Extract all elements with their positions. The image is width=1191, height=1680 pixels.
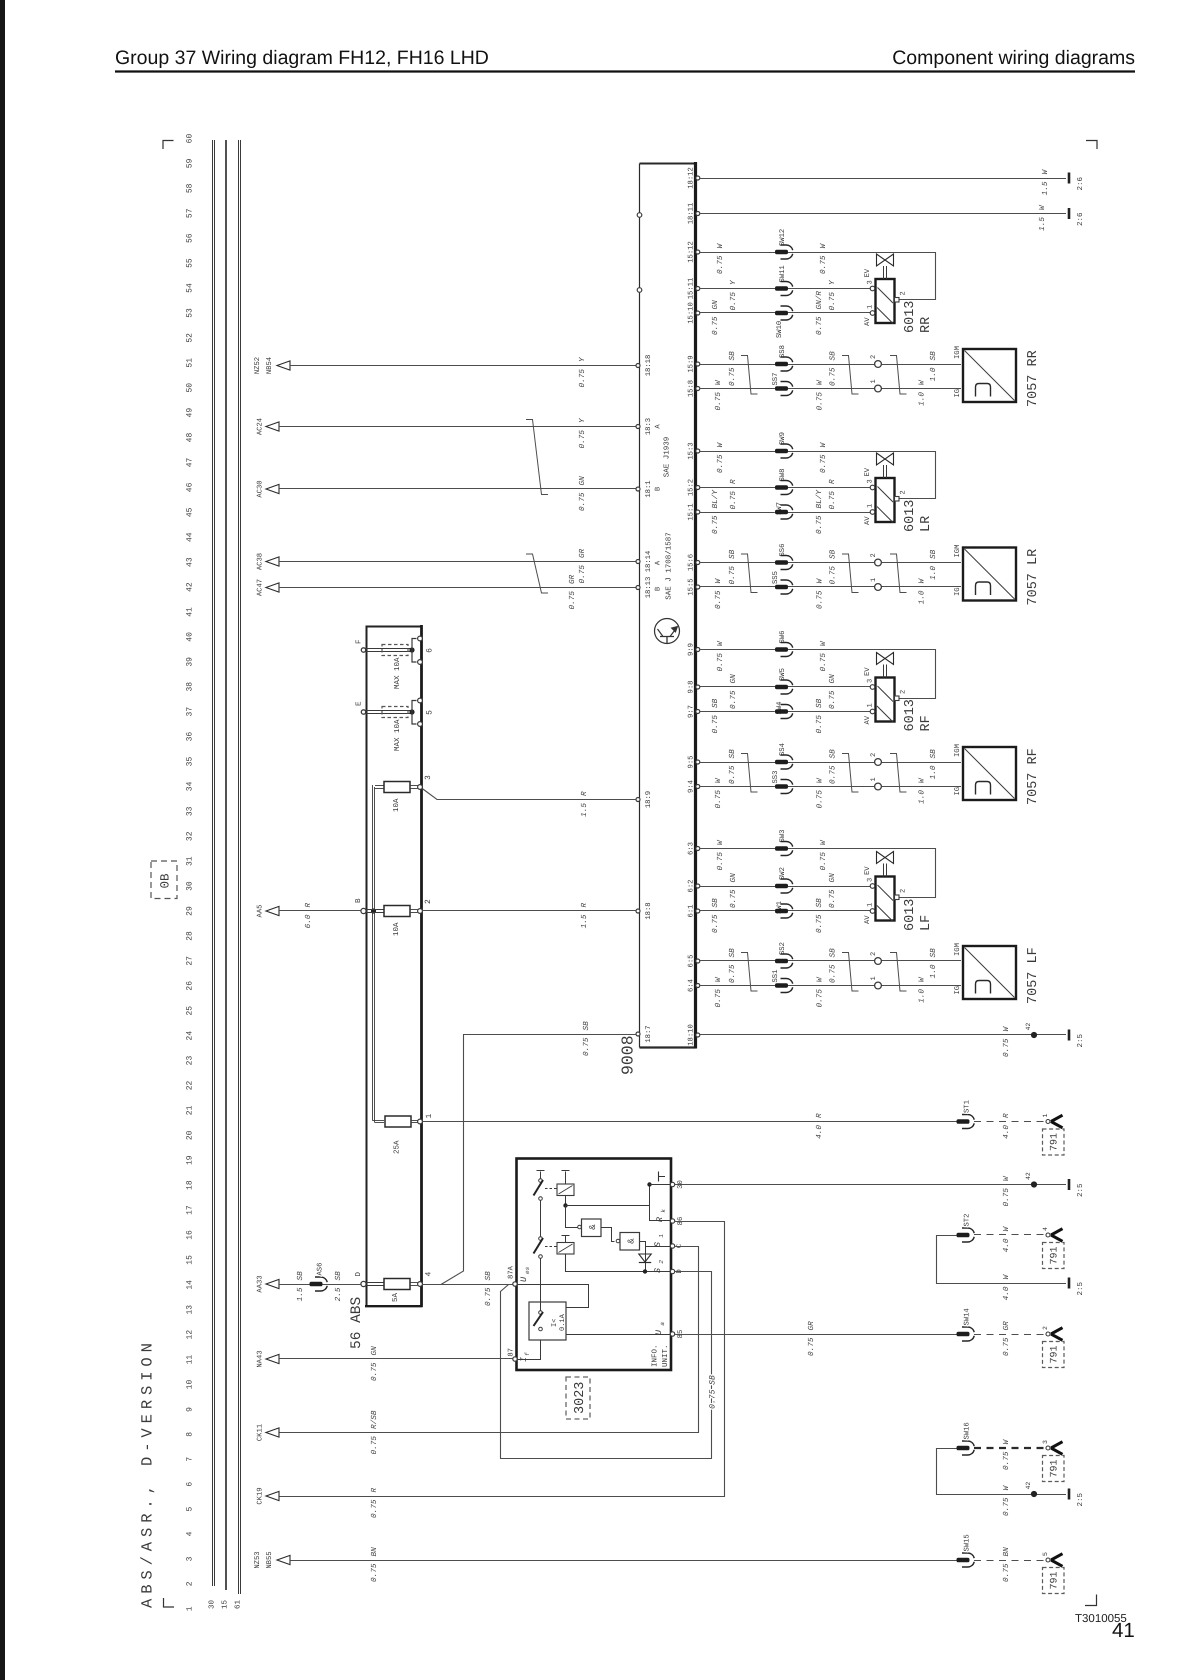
svg-text:2: 2 bbox=[1042, 1326, 1049, 1330]
svg-text:0.75: 0.75 bbox=[711, 914, 720, 933]
svg-text:15:6: 15:6 bbox=[688, 554, 696, 571]
svg-text:0.75: 0.75 bbox=[1002, 1563, 1011, 1582]
svg-text:0.75: 0.75 bbox=[714, 590, 723, 609]
svg-text:4: 4 bbox=[1042, 1227, 1049, 1231]
svg-text:1.0: 1.0 bbox=[929, 566, 938, 580]
svg-text:6: 6 bbox=[425, 648, 434, 653]
svg-text:MAX 10A: MAX 10A bbox=[393, 657, 402, 689]
svg-text:0.75: 0.75 bbox=[711, 715, 720, 734]
svg-text:0.75: 0.75 bbox=[1002, 1188, 1011, 1207]
svg-text:AC30: AC30 bbox=[257, 480, 265, 497]
svg-text:SB: SB bbox=[728, 749, 737, 759]
svg-text:SB: SB bbox=[815, 698, 824, 708]
svg-text:2:6: 2:6 bbox=[1076, 212, 1085, 226]
svg-text:21: 21 bbox=[185, 1105, 194, 1115]
svg-text:A: A bbox=[655, 560, 663, 565]
svg-text:4.0: 4.0 bbox=[815, 1125, 824, 1139]
svg-text:15:2: 15:2 bbox=[688, 479, 696, 496]
svg-text:AC47: AC47 bbox=[257, 579, 265, 596]
svg-text:1.0: 1.0 bbox=[917, 790, 926, 804]
svg-text:f: f bbox=[524, 1352, 531, 1356]
svg-text:SW11: SW11 bbox=[779, 265, 787, 282]
svg-text:15: 15 bbox=[222, 1599, 230, 1609]
svg-text:2:5: 2:5 bbox=[1076, 1492, 1085, 1506]
svg-text:35: 35 bbox=[185, 757, 194, 767]
svg-text:0.75: 0.75 bbox=[370, 1436, 379, 1455]
svg-text:0.1A: 0.1A bbox=[559, 1313, 567, 1331]
svg-text:40: 40 bbox=[185, 632, 194, 642]
svg-text:C: C bbox=[676, 1243, 684, 1248]
svg-text:SW14: SW14 bbox=[964, 1308, 972, 1325]
svg-text:18:9: 18:9 bbox=[645, 791, 653, 808]
svg-text:15:12: 15:12 bbox=[688, 241, 696, 263]
svg-text:S: S bbox=[653, 1268, 663, 1273]
svg-text:51: 51 bbox=[185, 358, 194, 368]
svg-text:1: 1 bbox=[425, 1114, 434, 1119]
svg-text:4.0: 4.0 bbox=[1002, 1286, 1011, 1300]
svg-text:0.75: 0.75 bbox=[815, 989, 824, 1008]
svg-text:2: 2 bbox=[870, 355, 878, 359]
svg-text:49: 49 bbox=[185, 408, 194, 418]
svg-text:15:1: 15:1 bbox=[688, 503, 696, 520]
svg-text:a: a bbox=[659, 1322, 666, 1326]
svg-text:AV: AV bbox=[864, 715, 872, 724]
svg-text:10: 10 bbox=[185, 1380, 194, 1390]
svg-text:10A: 10A bbox=[392, 798, 401, 812]
svg-text:6:1: 6:1 bbox=[688, 905, 696, 918]
svg-text:es: es bbox=[524, 1266, 531, 1274]
svg-text:SB: SB bbox=[728, 549, 737, 559]
svg-text:SS3: SS3 bbox=[772, 771, 780, 784]
svg-text:Component wiring diagrams: Component wiring diagrams bbox=[892, 47, 1135, 69]
svg-text:18:12: 18:12 bbox=[688, 167, 696, 189]
svg-text:2: 2 bbox=[185, 1581, 194, 1586]
svg-text:1.0: 1.0 bbox=[917, 590, 926, 604]
svg-text:BL/Y: BL/Y bbox=[711, 489, 720, 509]
svg-text:0.75: 0.75 bbox=[578, 430, 587, 449]
svg-text:18: 18 bbox=[185, 1180, 194, 1190]
svg-text:30: 30 bbox=[208, 1599, 217, 1609]
svg-text:87: 87 bbox=[508, 1348, 516, 1357]
svg-text:42: 42 bbox=[1025, 1172, 1032, 1180]
svg-text:1.5: 1.5 bbox=[1041, 181, 1050, 195]
svg-text:SB: SB bbox=[815, 898, 824, 908]
svg-text:1: 1 bbox=[870, 379, 878, 383]
svg-text:0.75: 0.75 bbox=[828, 491, 837, 510]
svg-text:0.75: 0.75 bbox=[370, 1563, 379, 1582]
svg-text:3: 3 bbox=[424, 775, 433, 780]
svg-text:0.75: 0.75 bbox=[1002, 1497, 1011, 1516]
svg-text:36: 36 bbox=[185, 732, 194, 742]
svg-text:0.75: 0.75 bbox=[729, 292, 738, 311]
svg-text:AV: AV bbox=[864, 915, 872, 924]
svg-text:IG: IG bbox=[954, 986, 962, 995]
svg-text:GN: GN bbox=[729, 873, 738, 883]
svg-text:56: 56 bbox=[185, 233, 194, 243]
svg-text:GN/R: GN/R bbox=[815, 291, 824, 310]
svg-text:18:11: 18:11 bbox=[688, 203, 696, 225]
svg-text:INFO.: INFO. bbox=[651, 1344, 660, 1367]
svg-text:GN: GN bbox=[578, 476, 587, 486]
svg-text:SW16: SW16 bbox=[964, 1422, 972, 1439]
svg-text:7057 LR: 7057 LR bbox=[1026, 549, 1041, 606]
svg-text:5: 5 bbox=[425, 710, 434, 715]
svg-text:30: 30 bbox=[185, 881, 194, 891]
svg-text:1.0: 1.0 bbox=[917, 989, 926, 1003]
svg-text:10A: 10A bbox=[392, 922, 401, 936]
svg-text:43: 43 bbox=[185, 557, 194, 567]
svg-text:GR: GR bbox=[1002, 1321, 1011, 1331]
svg-text:15:8: 15:8 bbox=[688, 380, 696, 397]
svg-text:0.75: 0.75 bbox=[819, 653, 828, 672]
svg-text:GR: GR bbox=[568, 574, 577, 584]
svg-text:0.75: 0.75 bbox=[714, 392, 723, 411]
svg-text:18:13: 18:13 bbox=[645, 577, 653, 599]
svg-text:6:4: 6:4 bbox=[688, 979, 696, 992]
svg-text:18:14: 18:14 bbox=[645, 551, 653, 573]
svg-text:SB: SB bbox=[582, 1021, 591, 1031]
svg-text:15:5: 15:5 bbox=[688, 578, 696, 595]
svg-text:A: A bbox=[655, 424, 663, 429]
svg-text:SS5: SS5 bbox=[772, 571, 780, 584]
svg-text:0.75: 0.75 bbox=[729, 889, 738, 908]
svg-text:AS6: AS6 bbox=[317, 1263, 325, 1276]
svg-text:55: 55 bbox=[185, 258, 194, 268]
svg-text:4.0: 4.0 bbox=[1002, 1238, 1011, 1252]
svg-text:SS2: SS2 bbox=[779, 942, 787, 955]
svg-text:0.75: 0.75 bbox=[1002, 1451, 1011, 1470]
svg-text:46: 46 bbox=[185, 482, 194, 492]
svg-text:59: 59 bbox=[185, 158, 194, 168]
svg-text:53: 53 bbox=[185, 308, 194, 318]
svg-text:42: 42 bbox=[1025, 1482, 1032, 1490]
svg-text:1.0: 1.0 bbox=[929, 765, 938, 779]
svg-text:IGM: IGM bbox=[954, 744, 962, 757]
svg-text:SS8: SS8 bbox=[779, 345, 787, 358]
svg-text:SW6: SW6 bbox=[779, 631, 787, 644]
svg-text:GN: GN bbox=[828, 873, 837, 883]
svg-text:0.75: 0.75 bbox=[716, 852, 725, 871]
svg-text:60: 60 bbox=[185, 134, 194, 144]
svg-text:0.75: 0.75 bbox=[716, 653, 725, 672]
svg-text:0.75: 0.75 bbox=[1002, 1038, 1011, 1057]
svg-text:3: 3 bbox=[1042, 1440, 1049, 1444]
svg-text:15:9: 15:9 bbox=[688, 355, 696, 372]
svg-text:NZ52: NZ52 bbox=[254, 357, 262, 374]
svg-text:0.75: 0.75 bbox=[716, 255, 725, 274]
svg-text:1: 1 bbox=[1042, 1114, 1049, 1118]
svg-text:SB: SB bbox=[296, 1271, 305, 1281]
svg-text:IG: IG bbox=[954, 787, 962, 796]
svg-text:0.75: 0.75 bbox=[828, 690, 837, 709]
svg-text:18:1: 18:1 bbox=[645, 480, 653, 497]
svg-text:2: 2 bbox=[424, 899, 433, 904]
svg-text:6:3: 6:3 bbox=[688, 842, 696, 855]
svg-text:0.75: 0.75 bbox=[370, 1362, 379, 1381]
svg-text:NB54: NB54 bbox=[266, 357, 274, 374]
svg-text:SW15: SW15 bbox=[964, 1534, 972, 1551]
svg-text:9008: 9008 bbox=[618, 1035, 637, 1075]
svg-text:0.75: 0.75 bbox=[819, 255, 828, 274]
svg-text:18:8: 18:8 bbox=[645, 902, 653, 919]
svg-text:IG: IG bbox=[954, 587, 962, 596]
svg-text:24: 24 bbox=[185, 1031, 194, 1041]
svg-text:87A: 87A bbox=[508, 1265, 516, 1279]
svg-text:32: 32 bbox=[185, 831, 194, 841]
svg-text:6:2: 6:2 bbox=[688, 880, 696, 893]
svg-text:GN: GN bbox=[370, 1346, 379, 1356]
svg-text:SB: SB bbox=[728, 948, 737, 958]
svg-text:18:18: 18:18 bbox=[645, 355, 653, 377]
svg-text:1: 1 bbox=[867, 305, 875, 309]
svg-text:1: 1 bbox=[870, 976, 878, 980]
svg-text:791: 791 bbox=[1050, 1459, 1061, 1477]
svg-text:NA43: NA43 bbox=[257, 1350, 265, 1367]
svg-text:SW12: SW12 bbox=[779, 229, 787, 246]
svg-text:1.5: 1.5 bbox=[1038, 217, 1047, 231]
svg-text:56 ABS: 56 ABS bbox=[349, 1297, 365, 1349]
svg-text:6013: 6013 bbox=[903, 301, 918, 333]
svg-text:BN: BN bbox=[1002, 1547, 1011, 1557]
svg-text:15:10: 15:10 bbox=[688, 302, 696, 324]
svg-text:27: 27 bbox=[185, 956, 194, 966]
svg-text:2: 2 bbox=[900, 690, 908, 694]
svg-text:SW9: SW9 bbox=[779, 432, 787, 445]
svg-text:k: k bbox=[660, 1209, 667, 1213]
svg-text:AA5: AA5 bbox=[257, 905, 265, 918]
svg-text:R: R bbox=[580, 791, 589, 796]
svg-text:GR: GR bbox=[807, 1321, 816, 1331]
svg-text:18:10: 18:10 bbox=[688, 1024, 696, 1046]
svg-text:R: R bbox=[370, 1488, 379, 1493]
svg-text:3: 3 bbox=[867, 280, 875, 284]
svg-text:SW3: SW3 bbox=[779, 830, 787, 843]
svg-text:0.75: 0.75 bbox=[728, 367, 737, 386]
svg-text:EV: EV bbox=[864, 268, 872, 277]
svg-text:SW8: SW8 bbox=[779, 469, 787, 482]
svg-text:42: 42 bbox=[1025, 1023, 1032, 1031]
svg-text:0.75: 0.75 bbox=[815, 914, 824, 933]
svg-text:1: 1 bbox=[867, 504, 875, 508]
svg-text:39: 39 bbox=[185, 657, 194, 667]
svg-text:RF: RF bbox=[919, 715, 934, 731]
svg-text:0.75: 0.75 bbox=[484, 1287, 493, 1306]
svg-text:RR: RR bbox=[919, 317, 934, 333]
svg-text:22: 22 bbox=[185, 1080, 194, 1090]
svg-text:7057 RR: 7057 RR bbox=[1026, 350, 1041, 407]
svg-text:BL/Y: BL/Y bbox=[815, 489, 824, 509]
svg-text:GR: GR bbox=[578, 548, 587, 558]
svg-text:6.0: 6.0 bbox=[304, 914, 313, 928]
svg-text:0.75: 0.75 bbox=[815, 715, 824, 734]
svg-text:3: 3 bbox=[867, 479, 875, 483]
svg-text:3023: 3023 bbox=[573, 1382, 588, 1414]
svg-text:2:5: 2:5 bbox=[1076, 1183, 1085, 1197]
svg-text:&: & bbox=[627, 1238, 637, 1244]
svg-text:0.75: 0.75 bbox=[568, 591, 577, 610]
svg-text:791: 791 bbox=[1050, 1133, 1061, 1151]
svg-text:3: 3 bbox=[867, 878, 875, 882]
svg-text:E: E bbox=[356, 701, 364, 706]
svg-text:EV: EV bbox=[864, 866, 872, 875]
svg-text:6013: 6013 bbox=[903, 699, 918, 731]
svg-text:R: R bbox=[655, 1216, 665, 1222]
svg-text:9:5: 9:5 bbox=[688, 756, 696, 769]
svg-text:SB: SB bbox=[334, 1271, 343, 1281]
svg-text:AA33: AA33 bbox=[257, 1275, 265, 1292]
svg-text:1.0: 1.0 bbox=[929, 964, 938, 978]
svg-text:2: 2 bbox=[658, 1260, 665, 1264]
svg-text:NZ53: NZ53 bbox=[254, 1551, 262, 1568]
svg-text:1: 1 bbox=[870, 777, 878, 781]
svg-text:ST1: ST1 bbox=[964, 1100, 972, 1113]
svg-text:2: 2 bbox=[900, 490, 908, 494]
svg-text:57: 57 bbox=[185, 208, 194, 218]
svg-text:LR: LR bbox=[919, 516, 934, 532]
svg-text:25: 25 bbox=[185, 1006, 194, 1016]
svg-text:2: 2 bbox=[900, 889, 908, 893]
svg-text:42: 42 bbox=[185, 582, 194, 592]
svg-text:1.0: 1.0 bbox=[929, 367, 938, 381]
svg-text:0.75: 0.75 bbox=[729, 690, 738, 709]
svg-text:17: 17 bbox=[185, 1205, 194, 1215]
svg-text:ST2: ST2 bbox=[964, 1214, 972, 1227]
svg-text:1: 1 bbox=[185, 1606, 194, 1611]
svg-text:1: 1 bbox=[870, 578, 878, 582]
svg-text:9:4: 9:4 bbox=[688, 780, 696, 793]
svg-text:0.75: 0.75 bbox=[711, 316, 720, 335]
svg-text:SB: SB bbox=[929, 549, 938, 559]
svg-text:R: R bbox=[729, 479, 738, 484]
svg-text:2:6: 2:6 bbox=[1076, 176, 1085, 190]
svg-text:9:8: 9:8 bbox=[688, 681, 696, 694]
svg-text:SB: SB bbox=[484, 1271, 493, 1281]
svg-text:0.75: 0.75 bbox=[370, 1499, 379, 1518]
svg-text:SS6: SS6 bbox=[779, 544, 787, 557]
svg-text:5: 5 bbox=[1042, 1552, 1049, 1556]
svg-text:2.5: 2.5 bbox=[334, 1287, 343, 1301]
svg-text:13: 13 bbox=[185, 1305, 194, 1315]
svg-text:UNIT.: UNIT. bbox=[662, 1344, 670, 1367]
svg-text:0.75: 0.75 bbox=[815, 316, 824, 335]
svg-text:&: & bbox=[588, 1224, 598, 1230]
svg-text:AC38: AC38 bbox=[257, 553, 265, 570]
svg-text:SW5: SW5 bbox=[779, 668, 787, 681]
svg-text:41: 41 bbox=[185, 607, 194, 617]
svg-text:0.75 SB: 0.75 SB bbox=[708, 1375, 717, 1409]
svg-text:9:9: 9:9 bbox=[688, 643, 696, 656]
svg-text:2: 2 bbox=[870, 952, 878, 956]
svg-text:16: 16 bbox=[185, 1230, 194, 1240]
svg-text:0.75: 0.75 bbox=[728, 964, 737, 983]
svg-text:0.75: 0.75 bbox=[578, 565, 587, 584]
svg-text:6:5: 6:5 bbox=[688, 955, 696, 968]
svg-text:14: 14 bbox=[185, 1280, 194, 1290]
svg-text:48: 48 bbox=[185, 433, 194, 443]
svg-text:4: 4 bbox=[424, 1272, 433, 1277]
svg-text:MAX 10A: MAX 10A bbox=[393, 719, 402, 751]
svg-text:AC24: AC24 bbox=[257, 418, 265, 435]
svg-text:15:11: 15:11 bbox=[688, 278, 696, 300]
svg-text:R: R bbox=[828, 479, 837, 484]
svg-text:GN: GN bbox=[729, 674, 738, 684]
svg-text:SB: SB bbox=[828, 749, 837, 759]
svg-text:2: 2 bbox=[870, 753, 878, 757]
svg-text:I<: I< bbox=[551, 1319, 559, 1327]
svg-text:0.75: 0.75 bbox=[714, 790, 723, 809]
svg-text:R: R bbox=[815, 1113, 824, 1118]
svg-text:0.75: 0.75 bbox=[828, 889, 837, 908]
svg-text:SAE J1939: SAE J1939 bbox=[663, 437, 672, 478]
svg-text:15:3: 15:3 bbox=[688, 442, 696, 459]
svg-text:3: 3 bbox=[867, 679, 875, 683]
svg-text:SB: SB bbox=[828, 351, 837, 361]
svg-text:0.75: 0.75 bbox=[728, 566, 737, 585]
svg-text:33: 33 bbox=[185, 806, 194, 816]
svg-text:41: 41 bbox=[1112, 1619, 1135, 1642]
svg-text:1.0: 1.0 bbox=[917, 392, 926, 406]
svg-text:45: 45 bbox=[185, 507, 194, 517]
svg-text:D: D bbox=[355, 1272, 363, 1277]
svg-text:1.5: 1.5 bbox=[580, 803, 589, 817]
svg-text:50: 50 bbox=[185, 383, 194, 393]
svg-text:52: 52 bbox=[185, 333, 194, 343]
svg-text:2: 2 bbox=[900, 291, 908, 295]
svg-text:791: 791 bbox=[1050, 1246, 1061, 1264]
svg-text:EV: EV bbox=[864, 667, 872, 676]
svg-text:ABS/ASR., D-VERSION: ABS/ASR., D-VERSION bbox=[139, 1338, 157, 1608]
svg-text:8: 8 bbox=[185, 1432, 194, 1437]
svg-text:0.75: 0.75 bbox=[578, 369, 587, 388]
svg-text:44: 44 bbox=[185, 532, 194, 542]
svg-text:11: 11 bbox=[185, 1355, 194, 1365]
svg-text:0.75: 0.75 bbox=[828, 765, 837, 784]
svg-text:SB: SB bbox=[929, 749, 938, 759]
svg-text:1: 1 bbox=[867, 903, 875, 907]
svg-text:SS1: SS1 bbox=[772, 970, 780, 983]
svg-text:GN: GN bbox=[828, 674, 837, 684]
svg-text:0.75: 0.75 bbox=[828, 566, 837, 585]
svg-text:2:5: 2:5 bbox=[1076, 1281, 1085, 1295]
svg-text:0.75: 0.75 bbox=[815, 790, 824, 809]
svg-text:25A: 25A bbox=[393, 1140, 402, 1154]
svg-text:AV: AV bbox=[864, 516, 872, 525]
svg-text:7057 LF: 7057 LF bbox=[1026, 947, 1041, 1004]
svg-text:1.5: 1.5 bbox=[296, 1287, 305, 1301]
svg-text:19: 19 bbox=[185, 1155, 194, 1165]
svg-text:LF: LF bbox=[919, 915, 934, 931]
svg-text:2: 2 bbox=[870, 553, 878, 557]
svg-text:0.75: 0.75 bbox=[819, 454, 828, 473]
svg-text:EV: EV bbox=[864, 467, 872, 476]
svg-text:0.75: 0.75 bbox=[819, 852, 828, 871]
svg-text:0.75: 0.75 bbox=[828, 964, 837, 983]
svg-text:SB: SB bbox=[711, 698, 720, 708]
svg-text:2:5: 2:5 bbox=[1076, 1033, 1085, 1047]
svg-text:5: 5 bbox=[185, 1507, 194, 1512]
svg-text:BN: BN bbox=[370, 1547, 379, 1557]
svg-text:18:3: 18:3 bbox=[645, 418, 653, 435]
svg-text:AV: AV bbox=[864, 317, 872, 326]
svg-text:GN: GN bbox=[711, 300, 720, 310]
svg-text:SAE J 1708/1587: SAE J 1708/1587 bbox=[665, 532, 674, 600]
svg-text:7: 7 bbox=[185, 1457, 194, 1462]
svg-text:0.75: 0.75 bbox=[711, 515, 720, 534]
svg-text:26: 26 bbox=[185, 981, 194, 991]
svg-text:R/SB: R/SB bbox=[370, 1410, 379, 1429]
svg-text:NB55: NB55 bbox=[266, 1551, 274, 1568]
svg-text:SS4: SS4 bbox=[779, 743, 787, 756]
